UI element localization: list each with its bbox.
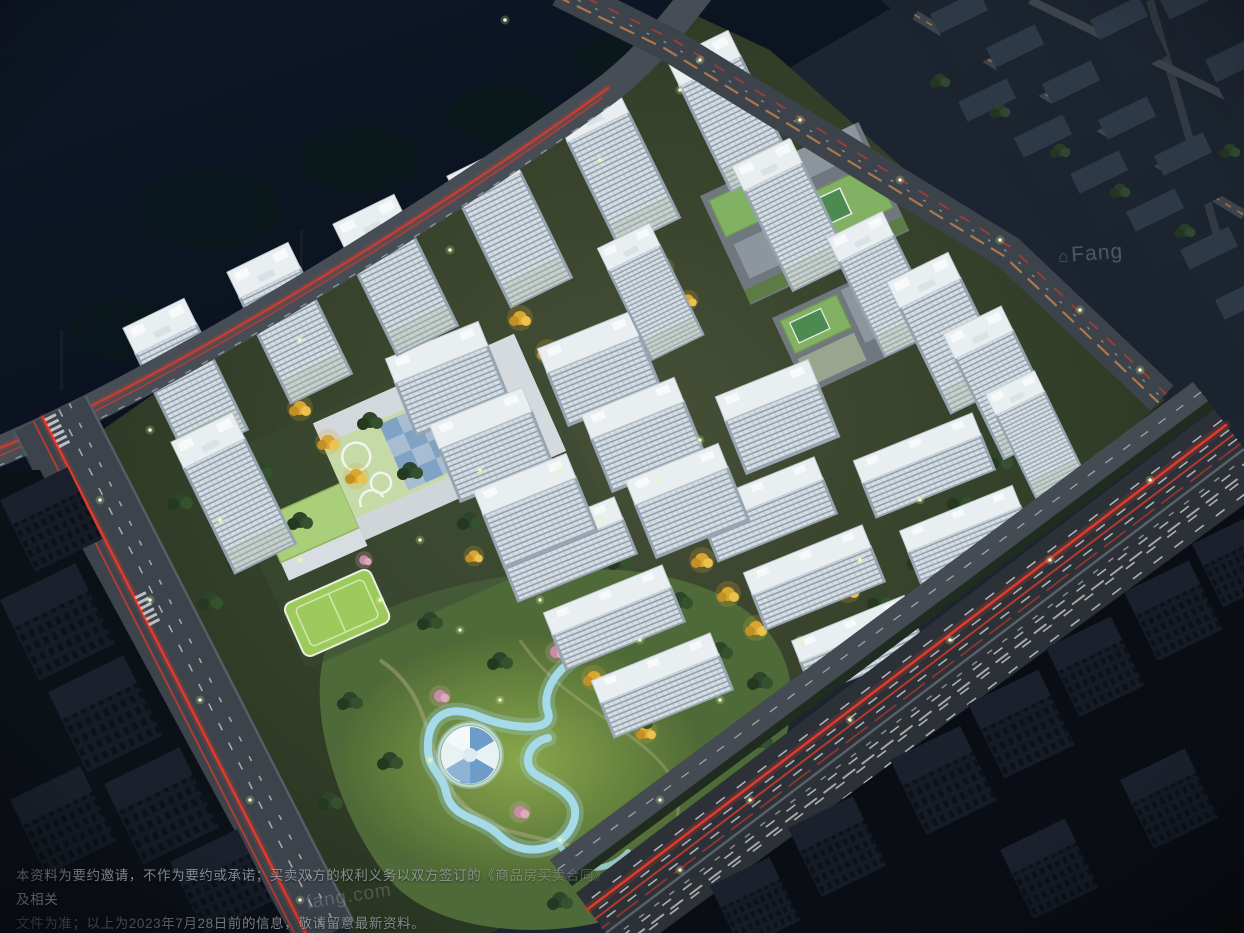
disclaimer: 本资料为要约邀请，不作为要约或承诺；买卖双方的权利义务以双方签订的《商品房买卖合… [16, 864, 616, 933]
aerial-rendering-page: ⌂Fang fang.com Fang 本资料为要约邀请，不作为要约或承诺；买卖… [0, 0, 1244, 933]
house-icon: ⌂ [1057, 247, 1070, 267]
disclaimer-line-2: 文件为准；以上为2023年7月28日前的信息，敬请留意最新资料。 [16, 912, 616, 933]
disclaimer-line-1: 本资料为要约邀请，不作为要约或承诺；买卖双方的权利义务以双方签订的《商品房买卖合… [16, 864, 616, 912]
aerial-night-rendering [0, 0, 1244, 933]
vignette [0, 0, 1244, 933]
watermark-fang-logo: ⌂Fang [1057, 240, 1124, 268]
